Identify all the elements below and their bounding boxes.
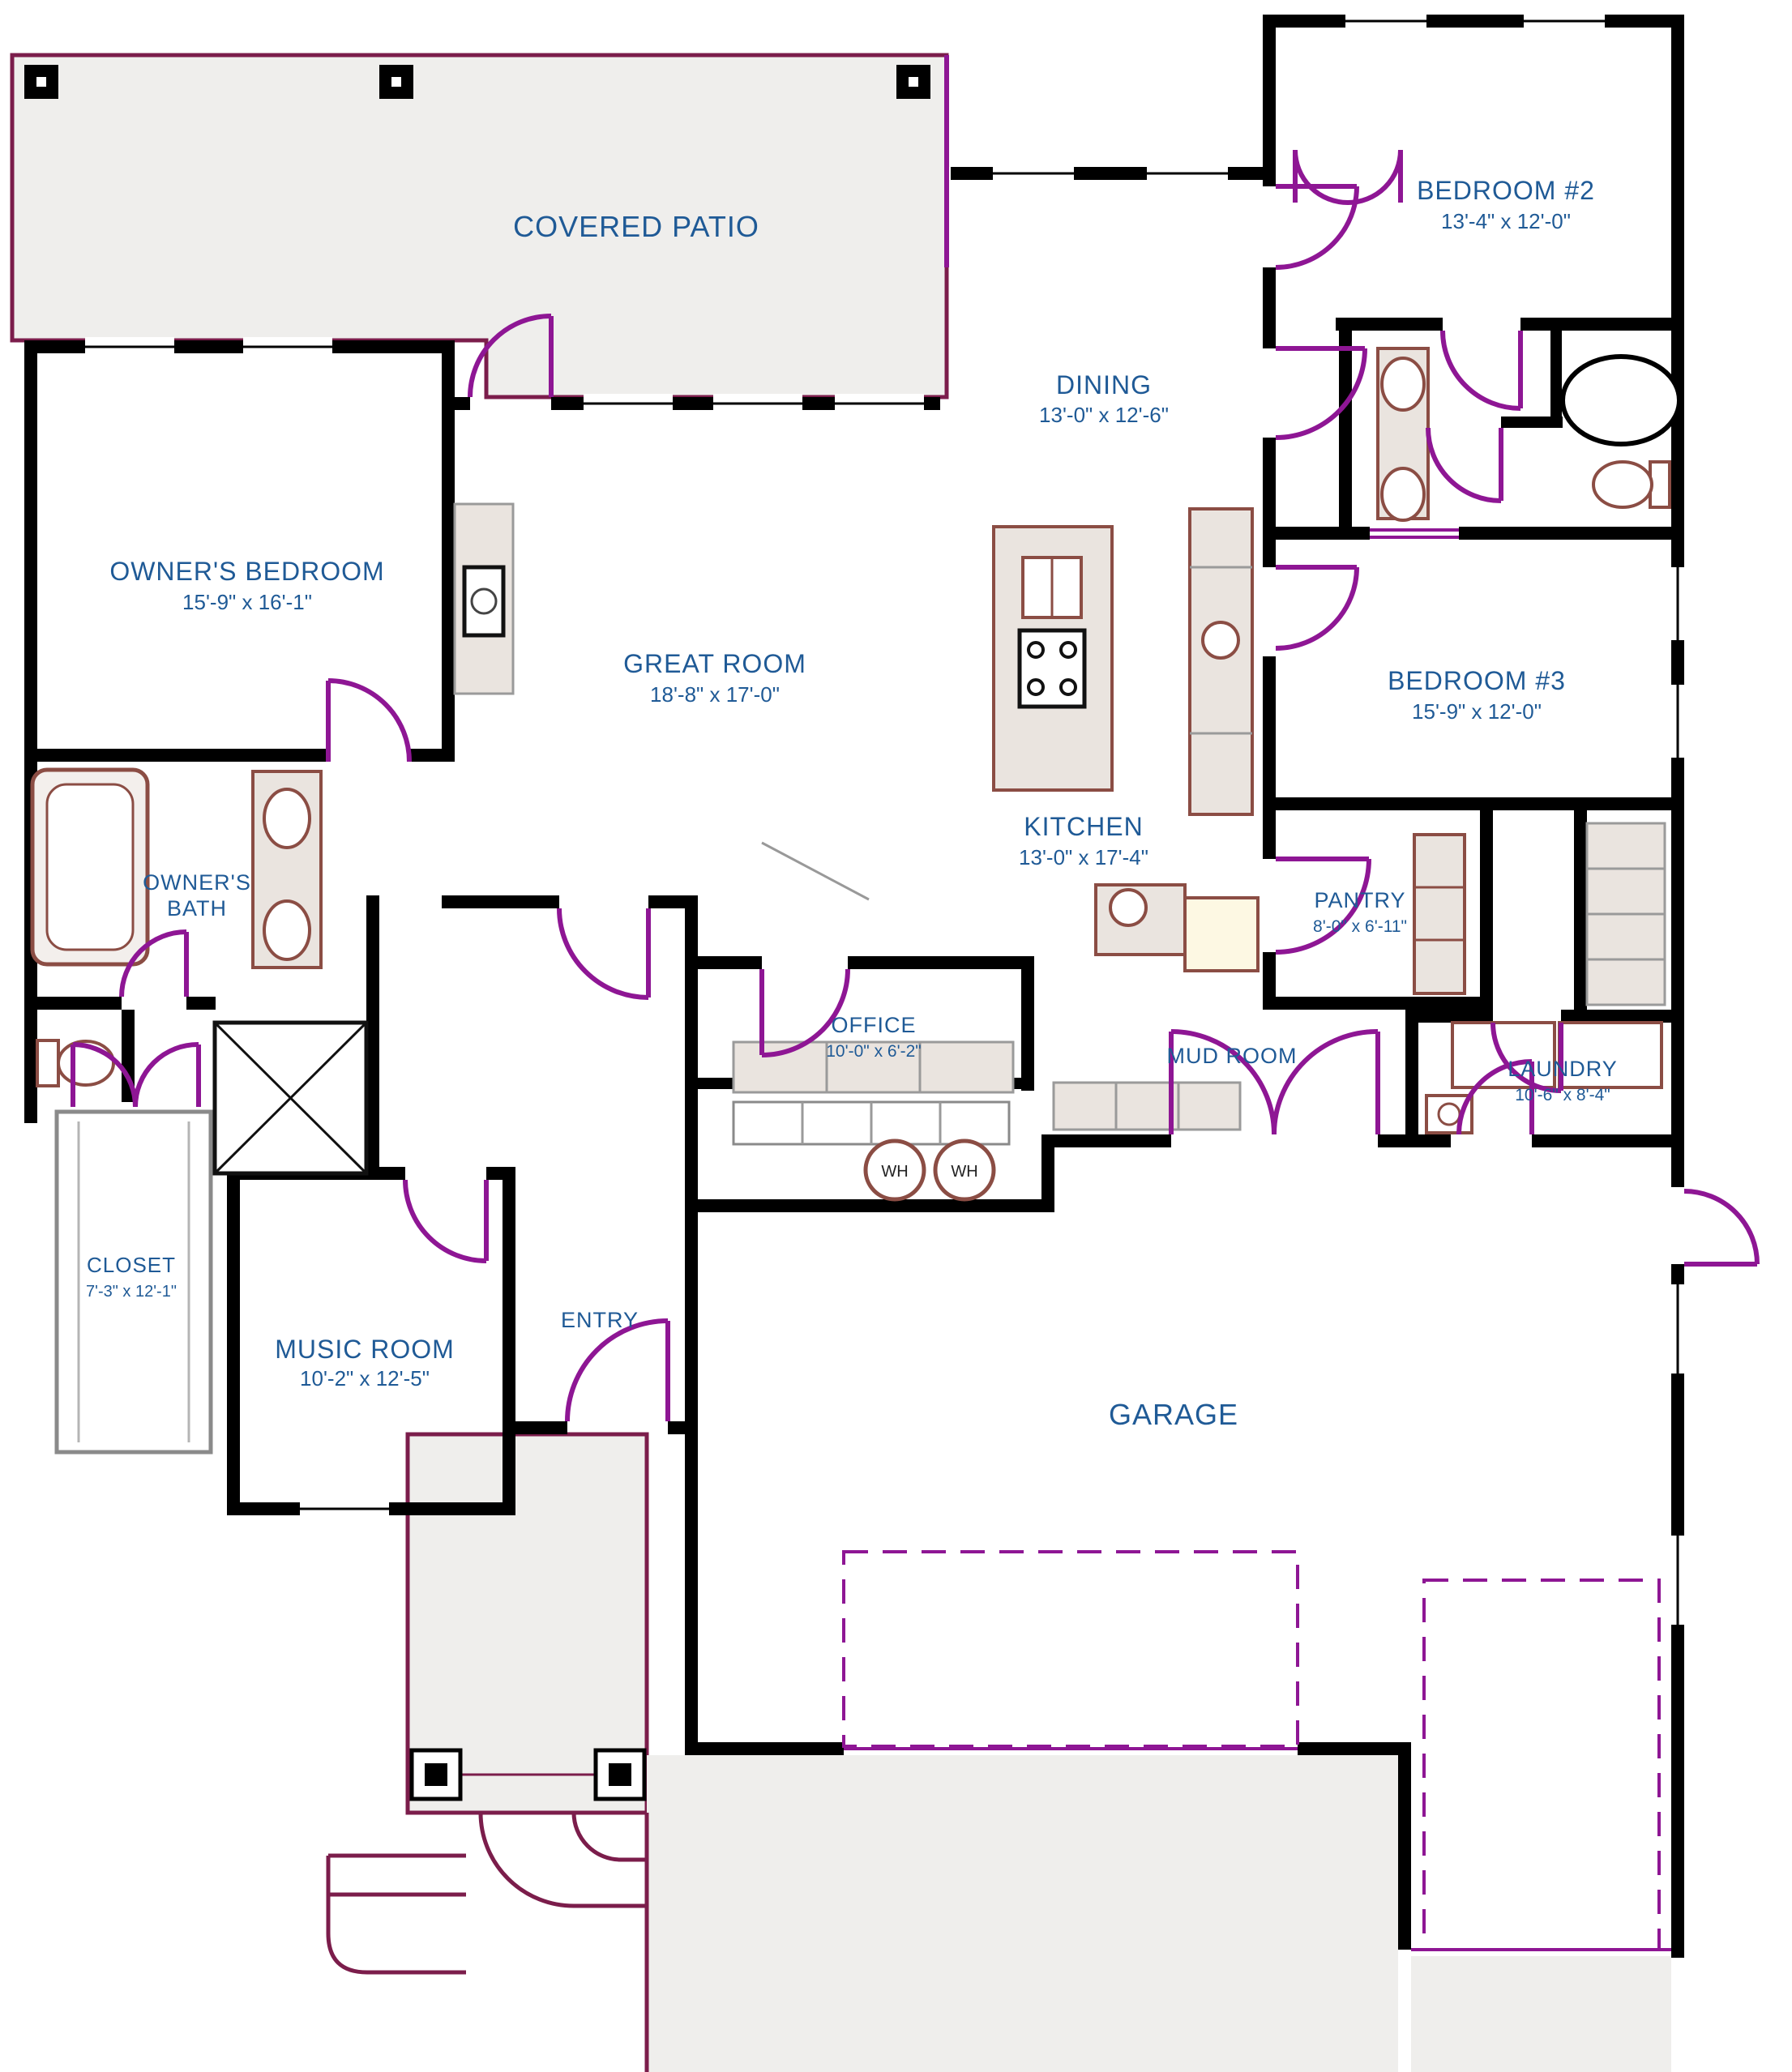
fixtures	[32, 348, 1679, 1452]
porch-step-inner	[574, 1813, 647, 1860]
owners-closet-shelving	[57, 1112, 211, 1452]
garage-side-door	[1684, 1191, 1757, 1264]
window	[300, 1499, 389, 1519]
driveway	[647, 1755, 1398, 2072]
window	[85, 337, 174, 357]
water-heater-label-2: WH	[951, 1163, 977, 1181]
owners-bedroom-door	[328, 681, 409, 762]
window	[1345, 11, 1426, 31]
room-label-entry: ENTRY	[561, 1308, 639, 1332]
room-label-owners-bedroom: OWNER'S BEDROOM	[109, 557, 384, 586]
window	[1668, 1536, 1687, 1625]
bedroom2-door	[1276, 186, 1357, 267]
shared-tub	[1563, 357, 1679, 444]
shared-sink-1	[1382, 358, 1424, 410]
room-dims-music-room: 10'-2" x 12'-5"	[300, 1366, 430, 1391]
room-label-owners-bath-1: OWNER'S	[143, 870, 251, 895]
window	[835, 394, 924, 413]
window	[993, 164, 1074, 183]
room-label-mud-room: MUD ROOM	[1167, 1044, 1298, 1068]
room-label-great-room: GREAT ROOM	[623, 649, 806, 678]
driveway-right	[1411, 1956, 1671, 2072]
owners-toilet-tank	[37, 1040, 58, 1086]
window	[1668, 685, 1687, 758]
vanity-sink-2	[264, 901, 310, 959]
butlers-sink	[1110, 890, 1146, 925]
room-label-laundry: LAUNDRY	[1508, 1057, 1618, 1081]
range-cooktop	[1020, 630, 1084, 707]
floor-plan: COVERED PATIO BEDROOM #2 13'-4" x 12'-0"…	[0, 0, 1792, 2072]
room-label-kitchen: KITCHEN	[1024, 812, 1143, 841]
vanity-sink-1	[264, 789, 310, 848]
room-label-bedroom3: BEDROOM #3	[1388, 666, 1566, 695]
room-dims-great-room: 18'-8" x 17'-0"	[650, 682, 780, 707]
window	[1668, 567, 1687, 640]
hall-door	[559, 908, 648, 998]
bath-pocket-door	[1370, 530, 1459, 537]
room-label-bedroom2: BEDROOM #2	[1417, 176, 1595, 205]
room-dims-office: 10'-0" x 6'-2"	[826, 1042, 921, 1061]
room-label-closet: CLOSET	[87, 1253, 176, 1277]
room-label-music-room: MUSIC ROOM	[275, 1335, 455, 1364]
room-label-office: OFFICE	[832, 1013, 917, 1037]
mud-bench	[1054, 1083, 1240, 1130]
room-dims-pantry: 8'-0" x 6'-11"	[1313, 917, 1407, 936]
pantry-shelves	[1414, 835, 1465, 993]
toilet-compartment-door	[1428, 428, 1501, 501]
window	[1524, 11, 1605, 31]
music-room-door	[405, 1180, 486, 1261]
water-heater-label-1: WH	[881, 1163, 908, 1181]
window	[1668, 1284, 1687, 1374]
room-label-covered-patio: COVERED PATIO	[513, 210, 759, 243]
ceiling-break	[762, 843, 869, 899]
shared-toilet	[1593, 462, 1652, 507]
garage-side-door-opening	[1668, 1187, 1687, 1264]
room-dims-bedroom3: 15'-9" x 12'-0"	[1412, 699, 1542, 724]
room-label-dining: DINING	[1056, 370, 1152, 399]
front-door	[567, 1321, 668, 1421]
room-dims-closet: 7'-3" x 12'-1"	[86, 1283, 177, 1301]
prep-sink	[1203, 622, 1238, 658]
bedroom3-door	[1276, 567, 1357, 648]
room-dims-dining: 13'-0" x 12'-6"	[1039, 403, 1169, 427]
garage-door-1car	[1424, 1580, 1659, 1950]
room-dims-kitchen: 13'-0" x 17'-4"	[1019, 845, 1148, 869]
shared-sink-2	[1382, 468, 1424, 520]
room-dims-bedroom2: 13'-4" x 12'-0"	[1441, 209, 1571, 233]
tv-cabinet	[464, 567, 503, 635]
refrigerator	[1185, 898, 1258, 971]
shared-bath-door	[1443, 331, 1520, 408]
kitchen-counter	[1190, 509, 1252, 814]
window	[243, 337, 332, 357]
window	[713, 394, 802, 413]
window	[584, 394, 673, 413]
walk-edge	[328, 1856, 466, 1972]
room-label-garage: GARAGE	[1109, 1398, 1238, 1431]
room-dims-owners-bedroom: 15'-9" x 16'-1"	[182, 590, 312, 614]
room-label-owners-bath-2: BATH	[167, 896, 227, 921]
room-label-pantry: PANTRY	[1314, 888, 1405, 912]
floor-plan-canvas: COVERED PATIO BEDROOM #2 13'-4" x 12'-0"…	[0, 0, 1792, 2072]
garage-door-2car	[844, 1552, 1298, 1746]
room-dims-laundry: 10'-6" x 8'-4"	[1515, 1086, 1610, 1104]
bedroom2-closet-doors	[1295, 150, 1401, 203]
shower	[215, 1023, 366, 1173]
window	[1147, 164, 1228, 183]
